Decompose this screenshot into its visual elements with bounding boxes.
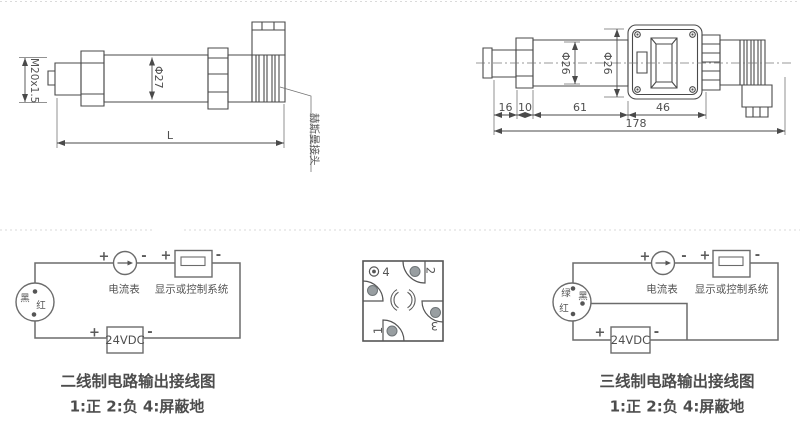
power-supply-label: 24VDC (105, 333, 144, 347)
length-label: L (167, 129, 174, 142)
black-wire-label: 黑 (578, 292, 588, 303)
red-wire-label: 红 (36, 300, 46, 312)
dim-16-label: 16 (499, 101, 513, 114)
three-wire-circuit-diagram: 绿 黑 红 + - + - 电流表 显示或控制系统 24VDC + - 三线制电… (553, 248, 778, 416)
dim-10-label: 10 (518, 101, 532, 114)
hirschmann-connector-label: 赫斯曼接头 (308, 113, 321, 166)
technical-figure: M20x1.5 Φ27 L 赫斯曼接头 Φ26 Φ26 16 10 61 (0, 0, 800, 421)
ground-pin-dot (372, 270, 376, 274)
power-plus-sign: + (595, 326, 606, 341)
three-wire-caption: 三线制电路输出接线图 (599, 372, 754, 391)
transmitter-drawing-plain: M20x1.5 Φ27 L 赫斯曼接头 (19, 22, 321, 172)
side-button-outline (637, 52, 647, 73)
ribbed-gland-outline (740, 40, 765, 85)
ammeter-plus-sign: + (99, 250, 110, 265)
display-plus-sign: + (700, 249, 711, 264)
power-supply-label: 24VDC (611, 333, 650, 347)
three-wire-pin-legend: 1:正 2:负 4:屏蔽地 (610, 398, 745, 416)
display-minus-sign: - (216, 248, 221, 263)
hex-nut-outline (81, 51, 104, 106)
two-wire-pin-legend: 1:正 2:负 4:屏蔽地 (70, 398, 205, 416)
ammeter-minus-sign: - (141, 249, 146, 264)
rear-neck-outline (720, 40, 740, 85)
green-wire-label: 绿 (561, 288, 571, 300)
hirschmann-plug-outline (252, 22, 285, 55)
display-housing-inner-outline (633, 30, 698, 95)
display-minus-sign: - (755, 248, 760, 263)
ammeter-label: 电流表 (646, 283, 678, 296)
ammeter-plus-sign: + (640, 250, 651, 265)
display-system-label: 显示或控制系统 (695, 283, 769, 296)
pin-3-label: 3 (431, 319, 438, 333)
black-wire-label: 黑 (20, 294, 30, 305)
transmitter-drawing-display: Φ26 Φ26 16 10 61 46 178 (476, 25, 792, 135)
connector-pinout-diagram: 4 2 1 3 (363, 261, 443, 341)
lock-nut-outline (208, 48, 228, 109)
pin-4-label: 4 (382, 265, 389, 279)
ribbed-connector-body (252, 55, 285, 102)
pin-2-label: 2 (424, 267, 438, 274)
ammeter-label: 电流表 (108, 283, 140, 296)
dim-178-label: 178 (626, 117, 647, 130)
two-wire-circuit-diagram: 黑 红 + - + - 电流表 显示或控制系统 24VDC + - 二线制电路输… (16, 248, 240, 416)
thread-size-label: M20x1.5 (28, 58, 40, 103)
pressure-port-outline (48, 63, 81, 95)
datasheet-page: M20x1.5 Φ27 L 赫斯曼接头 Φ26 Φ26 16 10 61 (0, 0, 800, 421)
corner-screws (635, 32, 696, 93)
two-wire-caption: 二线制电路输出接线图 (60, 372, 215, 391)
power-minus-sign: - (147, 325, 152, 340)
rear-nut-outline (702, 35, 720, 90)
display-plus-sign: + (161, 249, 172, 264)
ammeter-minus-sign: - (681, 249, 686, 264)
dim-61-label: 61 (573, 101, 587, 114)
diameter-label: Φ27 (152, 66, 165, 89)
dim-46-label: 46 (656, 101, 670, 114)
power-minus-sign: - (654, 325, 659, 340)
neck-outline (228, 55, 252, 102)
diameter-label-1: Φ26 (559, 52, 572, 75)
pin-1-label: 1 (371, 327, 385, 334)
elbow-cable-connector (742, 85, 772, 117)
display-system-label: 显示或控制系统 (155, 283, 229, 296)
red-wire-label: 红 (559, 303, 569, 315)
power-plus-sign: + (89, 326, 100, 341)
diameter-label-2: Φ26 (601, 52, 614, 75)
